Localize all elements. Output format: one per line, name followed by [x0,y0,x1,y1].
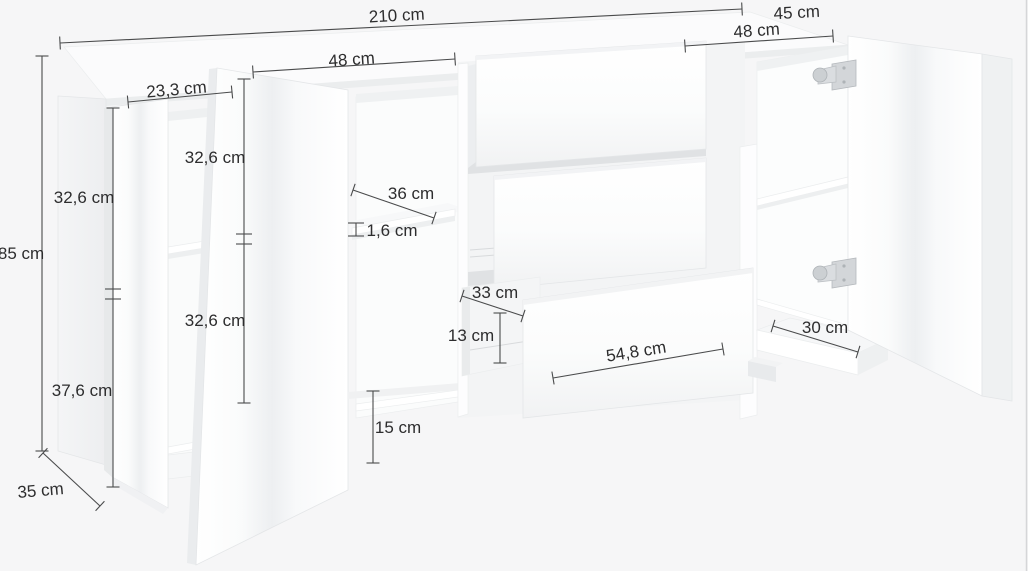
dim-label-left-upper-height: 32,6 cm [54,188,114,207]
dim-label-middle-lower-height: 32,6 cm [185,311,245,330]
dim-label-left-base-depth: 35 cm [17,479,65,502]
diagram-canvas: 210 cm 45 cm 48 cm 48 cm 23,3 cm 85 cm 3… [0,0,1028,571]
middle-compartment-interior [356,89,458,418]
left-door-panel [112,99,168,508]
dim-label-shelf-depth: 36 cm [388,184,434,203]
dim-label-total-width: 210 cm [368,5,425,27]
dim-label-drawer-height: 13 cm [448,326,494,345]
dim-label-right-door-width: 48 cm [733,19,781,41]
dim-label-right-base-depth: 30 cm [802,318,848,337]
left-door-edge [104,107,112,477]
dim-end-tick [742,3,743,16]
dim-label-top-depth: 45 cm [773,2,820,23]
right-door-edge [982,54,1012,401]
dim-label-plinth-height: 15 cm [375,418,421,437]
top-drawer-front [476,41,706,167]
middle-drawer-front [494,158,706,289]
sideboard-dimension-diagram: 210 cm 45 cm 48 cm 48 cm 23,3 cm 85 cm 3… [0,0,1028,571]
dim-label-drawer-depth: 33 cm [472,283,518,302]
dim-label-total-height: 85 cm [0,244,44,263]
dim-label-left-door-width: 48 cm [328,48,376,70]
cabinet-left-side-panel [58,96,106,465]
dim-label-left-lower-height: 37,6 cm [52,381,112,400]
dim-end-tick [60,37,61,50]
dim-label-shelf-thickness: 1,6 cm [366,221,417,240]
top-drawer-side [468,64,476,168]
dim-label-middle-upper-height: 32,6 cm [185,148,245,167]
